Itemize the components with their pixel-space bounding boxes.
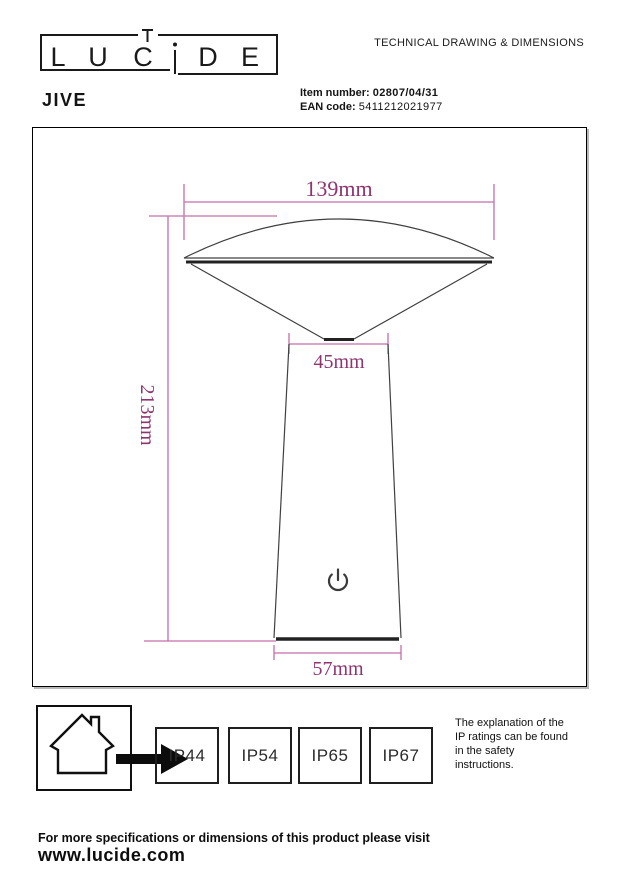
logo-letter: D — [198, 42, 218, 72]
lucide-logo: L U C D E — [38, 26, 280, 80]
logo-letter: C — [133, 42, 153, 72]
dim-label-shade-width: 139mm — [305, 176, 372, 201]
lamp-body-right — [388, 344, 401, 638]
dim-label-height: 213mm — [136, 384, 158, 446]
ip-rating-label: IP67 — [383, 746, 420, 766]
ip-rating-badge: IP65 — [298, 727, 362, 784]
visit-text: For more specifications or dimensions of… — [38, 831, 430, 845]
ean-value: 5411212021977 — [359, 101, 443, 113]
logo-letter-i-dot — [173, 43, 177, 47]
ip-rating-label: IP54 — [242, 746, 279, 766]
logo-letter: L — [50, 42, 65, 72]
lamp-cone-left — [191, 264, 324, 339]
ip-rating-label: IP44 — [169, 746, 206, 766]
ean-label: EAN code: — [300, 101, 356, 113]
item-number-label: Item number: — [300, 87, 370, 99]
lamp-shade-dome — [184, 219, 494, 258]
house-icon — [38, 707, 126, 785]
logo-letter: U — [88, 42, 108, 72]
dim-label-neck-width: 45mm — [313, 351, 365, 373]
item-number-value: 02807/04/31 — [373, 87, 439, 99]
ip-rating-badge: IP44 — [155, 727, 219, 784]
ip-rating-badge: IP67 — [369, 727, 433, 784]
house-outline — [51, 715, 113, 773]
dim-label-base-width: 57mm — [312, 658, 364, 680]
product-name: JIVE — [42, 90, 87, 111]
logo-letter: E — [241, 42, 259, 72]
lamp-cone-right — [354, 264, 487, 339]
lamp-body-left — [274, 344, 289, 638]
item-number-row: Item number: 02807/04/31 — [300, 86, 443, 100]
website-url: www.lucide.com — [38, 845, 185, 866]
product-codes: Item number: 02807/04/31 EAN code: 54112… — [300, 86, 443, 114]
ip-rating-badge: IP54 — [228, 727, 292, 784]
ip-rating-label: IP65 — [312, 746, 349, 766]
ip-explanation-note: The explanation of the IP ratings can be… — [455, 716, 595, 772]
technical-drawing-sheet: L U C D E TECHNICAL DRAWING & DIMENSIONS… — [0, 0, 620, 877]
drawing-frame: 139mm 45mm 213mm 57mm — [32, 127, 587, 687]
lamp-technical-drawing: 139mm 45mm 213mm 57mm — [33, 128, 586, 686]
document-title: TECHNICAL DRAWING & DIMENSIONS — [374, 37, 584, 49]
ean-row: EAN code: 5411212021977 — [300, 100, 443, 114]
